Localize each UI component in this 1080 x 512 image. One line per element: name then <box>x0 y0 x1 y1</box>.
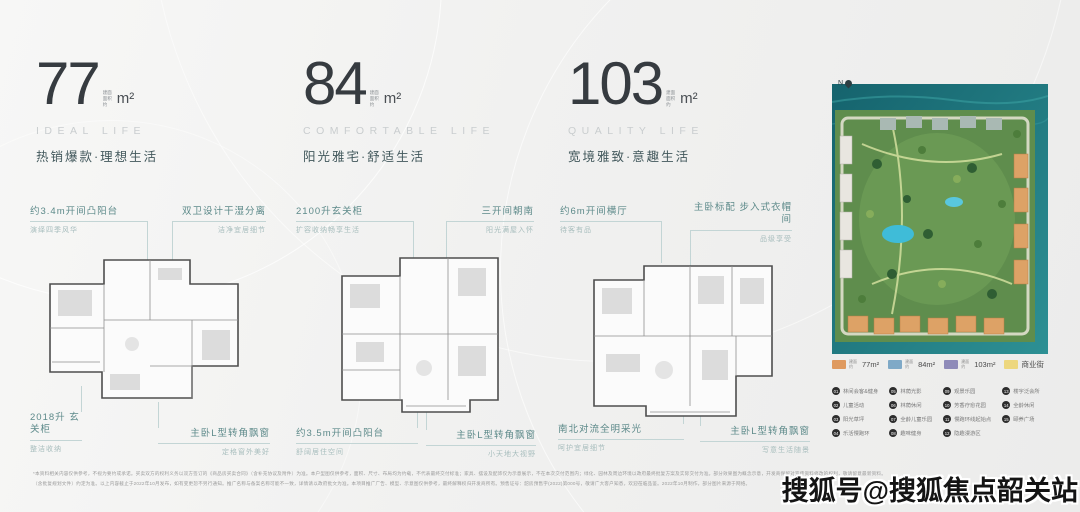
legend-number-badge: 13 <box>1002 387 1010 395</box>
legend-item: 04乐活慢跑环 <box>832 429 878 437</box>
legend-item: 02儿童活动 <box>832 401 878 409</box>
callout-title: 约3.5m开间凸阳台 <box>296 428 418 444</box>
chinese-tagline: 热销爆款·理想生活 <box>36 146 158 165</box>
area-unit: m² <box>117 90 135 107</box>
callout-bathrooms: 双卫设计干湿分离 洁净宜居细节 <box>172 206 266 235</box>
callout-title: 2100升玄关柜 <box>296 206 414 222</box>
legend-number-badge: 07 <box>889 415 897 423</box>
legend-item: 14全龄休闲 <box>1002 401 1040 409</box>
callout-south-facing: 三开间朝南 阳光满屋入怀 <box>446 206 534 235</box>
legend-number-badge: 10 <box>943 401 951 409</box>
unit-header-103: 103 建面 面积约 m² QUALITY LIFE 宽境雅致·意趣生活 <box>568 56 704 165</box>
legend-number-badge: 06 <box>889 401 897 409</box>
legend-label: 林荫休闲 <box>900 401 921 409</box>
callout-living-hall: 约6m开间横厅 待客有品 <box>560 206 662 235</box>
callout-title: 2018升 玄关柜 <box>30 412 82 441</box>
callout-sub: 舒阔居住空间 <box>296 448 418 457</box>
compass-label: N <box>838 80 843 87</box>
callout-sub: 待客有品 <box>560 226 662 235</box>
area-number: 84 <box>303 56 366 111</box>
legend-label: 慢跑环线起始点 <box>954 415 991 423</box>
legend-label: 隐趣漫游区 <box>954 429 981 437</box>
callout-sub: 阳光满屋入怀 <box>446 226 534 235</box>
callout-title: 主卧L型转角飘窗 <box>700 426 810 442</box>
callout-sub: 呵护宜居细节 <box>558 444 684 453</box>
english-caption: IDEAL LIFE <box>36 125 158 137</box>
color-swatch <box>1004 360 1018 369</box>
floor-plan-77 <box>40 250 250 408</box>
map-legend-chips: 建面约 77m² 建面约 84m² 建面约 103m² 商业街 <box>832 359 1068 370</box>
legend-chip-103: 建面约 103m² <box>944 360 995 370</box>
color-swatch <box>944 360 958 369</box>
callout-sub: 定格窗外美好 <box>158 448 270 457</box>
callout-sub: 扩容收纳畅享生活 <box>296 226 414 235</box>
area-note: 建面 面积约 <box>103 90 115 107</box>
legend-item: 09观景乐园 <box>943 387 991 395</box>
legend-item: 15颐养广场 <box>1002 415 1040 423</box>
callout-sub: 写意生活随景 <box>700 446 810 455</box>
english-caption: COMFORTABLE LIFE <box>303 125 495 137</box>
legend-item: 01林间会客&健身 <box>832 387 878 395</box>
area-note: 建面 面积约 <box>370 90 382 107</box>
legend-label: 颐养广场 <box>1013 415 1034 423</box>
chinese-tagline: 阳光雅宅·舒适生活 <box>303 146 495 165</box>
legend-item: 13楼宇泛会所 <box>1002 387 1040 395</box>
legend-label: 趣味健身 <box>900 429 921 437</box>
legend-number-badge: 12 <box>943 429 951 437</box>
area-number: 77 <box>36 56 99 111</box>
floor-plan-103 <box>586 258 781 428</box>
legend-item: 12隐趣漫游区 <box>943 429 991 437</box>
legend-label: 观景乐园 <box>954 387 975 395</box>
legend-number-badge: 05 <box>889 387 897 395</box>
callout-bay-window: 主卧L型转角飘窗 写意生活随景 <box>700 426 810 455</box>
chip-note: 建面约 <box>961 360 971 370</box>
legend-label: 全龄休闲 <box>1013 401 1034 409</box>
callout-title: 约3.4m开间凸阳台 <box>30 206 148 222</box>
legend-number-badge: 11 <box>943 415 951 423</box>
legend-column: 09观景乐园 10芳香疗愈花园 11慢跑环线起始点 12隐趣漫游区 <box>943 387 991 437</box>
chip-label: 84m² <box>918 360 935 369</box>
legend-number-badge: 09 <box>943 387 951 395</box>
callout-foyer-cabinet: 2018升 玄关柜 整洁收纳 <box>30 412 82 454</box>
area-number: 103 <box>568 56 662 111</box>
chip-note: 建面约 <box>849 360 859 370</box>
callout-title: 主卧L型转角飘窗 <box>426 430 536 446</box>
legend-number-badge: 03 <box>832 415 840 423</box>
site-master-plan <box>832 84 1048 354</box>
legend-label: 乐活慢跑环 <box>843 429 870 437</box>
legend-item: 11慢跑环线起始点 <box>943 415 991 423</box>
unit-header-77: 77 建面 面积约 m² IDEAL LIFE 热销爆款·理想生活 <box>36 56 158 165</box>
chip-label: 商业街 <box>1021 359 1044 370</box>
callout-balcony: 约3.4m开间凸阳台 演绎四季风华 <box>30 206 148 235</box>
legend-chip-77: 建面约 77m² <box>832 360 879 370</box>
property-poster: 77 建面 面积约 m² IDEAL LIFE 热销爆款·理想生活 84 建面 … <box>0 0 1080 512</box>
chip-label: 77m² <box>862 360 879 369</box>
legend-item: 05林荫光影 <box>889 387 932 395</box>
callout-title: 主卧L型转角飘窗 <box>158 428 270 444</box>
legend-column: 13楼宇泛会所 14全龄休闲 15颐养广场 <box>1002 387 1040 437</box>
legend-item: 07全龄儿童乐园 <box>889 415 932 423</box>
legend-number-badge: 04 <box>832 429 840 437</box>
callout-title: 约6m开间横厅 <box>560 206 662 222</box>
callout-title: 双卫设计干湿分离 <box>172 206 266 222</box>
unit-header-84: 84 建面 面积约 m² COMFORTABLE LIFE 阳光雅宅·舒适生活 <box>303 56 495 165</box>
callout-sub: 小天地大视野 <box>426 450 536 459</box>
legend-number-badge: 02 <box>832 401 840 409</box>
callout-sub: 品级享受 <box>690 235 792 244</box>
legend-item: 03阳光草坪 <box>832 415 878 423</box>
legend-chip-84: 建面约 84m² <box>888 360 935 370</box>
legend-item: 10芳香疗愈花园 <box>943 401 991 409</box>
chinese-tagline: 宽境雅致·意趣生活 <box>568 146 704 165</box>
legend-item: 08趣味健身 <box>889 429 932 437</box>
legend-number-badge: 08 <box>889 429 897 437</box>
color-swatch <box>832 360 846 369</box>
area-note: 建面 面积约 <box>666 90 678 107</box>
chip-label: 103m² <box>974 360 995 369</box>
legend-label: 阳光草坪 <box>843 415 864 423</box>
legend-number-badge: 14 <box>1002 401 1010 409</box>
legend-item: 06林荫休闲 <box>889 401 932 409</box>
legal-disclaimer: *本资料相关内容仅供参考，不视为要约或承诺。买卖双方的权利义务以双方签订的《商品… <box>33 470 901 491</box>
callout-bay-window: 主卧L型转角飘窗 定格窗外美好 <box>158 428 270 457</box>
chip-note: 建面约 <box>905 360 915 370</box>
compass-north: N <box>838 80 852 87</box>
callout-title: 主卧标配 步入式衣帽间 <box>690 202 792 231</box>
floor-plan-84 <box>330 250 510 420</box>
disclaimer-line-1: *本资料相关内容仅供参考，不视为要约或承诺。买卖双方的权利义务以双方签订的《商品… <box>33 470 901 477</box>
legend-column: 01林间会客&健身 02儿童活动 03阳光草坪 04乐活慢跑环 <box>832 387 878 437</box>
legend-number-badge: 01 <box>832 387 840 395</box>
legend-chip-commercial: 商业街 <box>1004 359 1044 370</box>
english-caption: QUALITY LIFE <box>568 125 704 137</box>
callout-foyer-cabinet: 2100升玄关柜 扩容收纳畅享生活 <box>296 206 414 235</box>
legend-label: 林荫光影 <box>900 387 921 395</box>
disclaimer-line-2: （含批复规划文件）约定为准。以上内容截止于2022年10月发布，如有变更恕不另行… <box>33 480 901 487</box>
callout-balcony: 约3.5m开间凸阳台 舒阔居住空间 <box>296 428 418 457</box>
legend-label: 林间会客&健身 <box>843 387 878 395</box>
amenity-legend: 01林间会客&健身 02儿童活动 03阳光草坪 04乐活慢跑环 05林荫光影 0… <box>832 387 1040 437</box>
callout-sub: 洁净宜居细节 <box>172 226 266 235</box>
legend-number-badge: 15 <box>1002 415 1010 423</box>
area-unit: m² <box>384 90 402 107</box>
legend-label: 全龄儿童乐园 <box>900 415 932 423</box>
legend-label: 芳香疗愈花园 <box>954 401 986 409</box>
sohu-watermark: 搜狐号@搜狐焦点韶关站 <box>782 469 1078 508</box>
callout-walk-in-closet: 主卧标配 步入式衣帽间 品级享受 <box>690 202 792 244</box>
callout-bay-window: 主卧L型转角飘窗 小天地大视野 <box>426 430 536 459</box>
callout-sub: 演绎四季风华 <box>30 226 148 235</box>
area-unit: m² <box>680 90 698 107</box>
color-swatch <box>888 360 902 369</box>
compass-pin-icon <box>844 79 854 89</box>
legend-column: 05林荫光影 06林荫休闲 07全龄儿童乐园 08趣味健身 <box>889 387 932 437</box>
callout-title: 三开间朝南 <box>446 206 534 222</box>
callout-daylight: 南北对流全明采光 呵护宜居细节 <box>558 424 684 453</box>
legend-label: 楼宇泛会所 <box>1013 387 1040 395</box>
legend-label: 儿童活动 <box>843 401 864 409</box>
callout-sub: 整洁收纳 <box>30 445 82 454</box>
